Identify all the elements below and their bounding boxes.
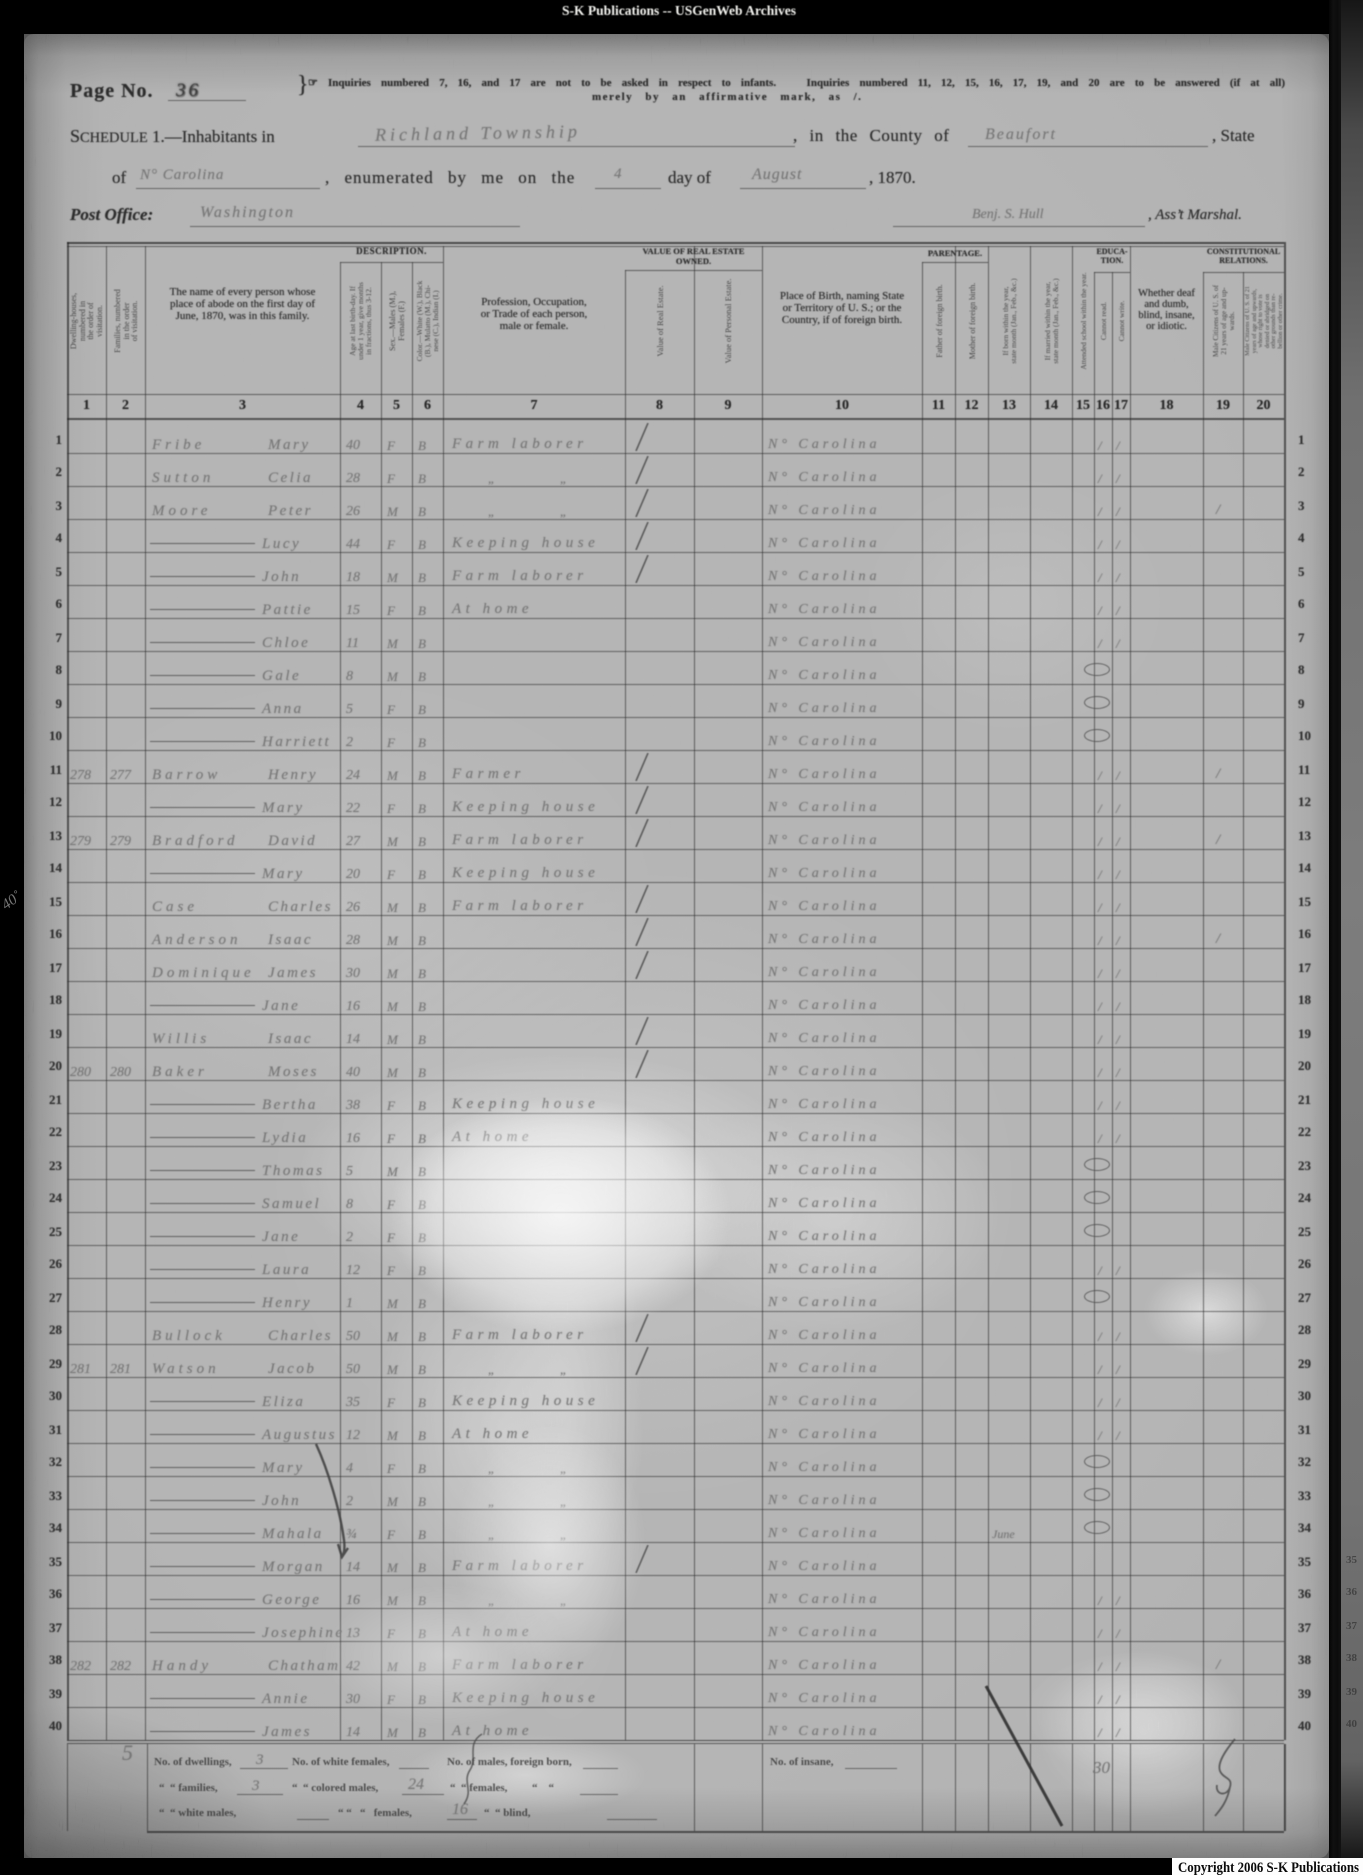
svg-text:S-K Publications -- USGenWeb A: S-K Publications -- USGenWeb Archives — [562, 3, 796, 18]
svg-text:Copyright 2006 S-K Publication: Copyright 2006 S-K Publications — [1178, 1860, 1359, 1875]
